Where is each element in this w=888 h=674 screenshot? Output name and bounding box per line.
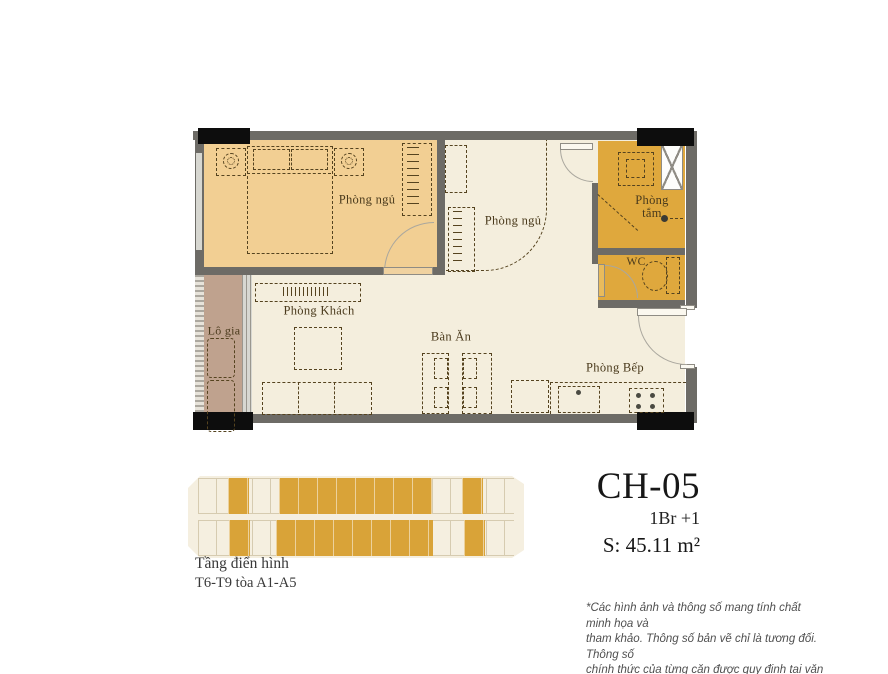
tv-screen <box>283 287 331 296</box>
wardrobe2-hangers <box>453 211 462 266</box>
unit-type: 1Br +1 <box>500 508 700 529</box>
toilet-bowl <box>642 261 668 291</box>
typical-floor-overview <box>188 476 524 558</box>
disclaimer-line-3: chính thức của từng căn được quy định tạ… <box>586 663 826 674</box>
loggia-screen-band <box>195 275 204 412</box>
fridge <box>511 380 549 413</box>
loggia-fixture-2 <box>207 380 235 432</box>
pillow-left <box>253 149 290 170</box>
highlighted-unit-bottom-left <box>229 520 250 556</box>
highlighted-units-bottom-center <box>276 520 433 556</box>
highlighted-unit-top-left <box>228 478 249 514</box>
pillow-right <box>291 149 328 170</box>
column-top-left <box>198 128 250 144</box>
sofa-seat-line-2 <box>334 382 335 413</box>
overview-caption: Tầng điển hình T6-T9 tòa A1-A5 <box>195 555 296 592</box>
disclaimer-line-2: tham khảo. Thông số bản vẽ chỉ là tương … <box>586 632 826 663</box>
stove <box>629 388 664 413</box>
wc-bottom-wall <box>598 300 685 308</box>
bathroom-label-line2: tắm <box>635 207 668 220</box>
right-wall-upper <box>686 131 697 308</box>
apartment-floorplan: Phòng ngủ Phòng ngủ Phòng tắm WC Lô gia … <box>193 128 697 430</box>
washing-machine-drum <box>626 159 645 178</box>
bedroom1-window <box>196 153 202 250</box>
dining-chair-3 <box>463 358 477 379</box>
toilet-tank <box>666 257 680 294</box>
living-label: Phòng Khách <box>283 304 354 319</box>
column-bottom-right <box>637 412 694 430</box>
sofa <box>262 382 372 415</box>
loggia-fixture-1 <box>207 338 235 378</box>
dining-chair-4 <box>463 387 477 408</box>
bathroom-label: Phòng tắm <box>635 194 668 220</box>
floorplan-page: Phòng ngủ Phòng ngủ Phòng tắm WC Lô gia … <box>0 0 888 674</box>
wc-label: WC <box>626 256 645 268</box>
coffee-table <box>294 327 342 370</box>
bedroom1-door-leaf <box>383 267 433 275</box>
highlighted-unit-top-right <box>462 478 483 514</box>
desk-bedroom2 <box>445 145 467 193</box>
bath-wc-wall <box>598 248 685 255</box>
disclaimer-note: *Các hình ảnh và thông số mang tính chất… <box>586 601 826 674</box>
sofa-seat-line-1 <box>298 382 299 413</box>
disclaimer-line-1: *Các hình ảnh và thông số mang tính chất… <box>586 601 826 632</box>
lamp-right <box>341 153 357 169</box>
column-top-right <box>637 128 694 146</box>
technical-shaft <box>661 144 683 190</box>
stove-burners <box>636 393 641 398</box>
bedroom1-label: Phòng ngủ <box>339 193 396 208</box>
basin-dashes <box>670 218 683 219</box>
overview-caption-line2: T6-T9 tòa A1-A5 <box>195 575 296 592</box>
highlighted-units-top-center <box>279 478 432 514</box>
lamp-left <box>223 153 239 169</box>
wardrobe1-hangers <box>407 147 419 210</box>
unit-info: CH-05 1Br +1 S: 45.11 m² <box>500 468 700 558</box>
kitchen-faucet <box>576 390 581 395</box>
overview-caption-line1: Tầng điển hình <box>195 555 296 573</box>
loggia-glass-door <box>242 275 252 412</box>
top-wall <box>193 131 697 140</box>
entrance-door-leaf <box>637 308 687 316</box>
bedroom1-bottom-wall <box>204 267 383 275</box>
dining-label: Bàn Ăn <box>431 330 471 345</box>
bathroom-door-leaf <box>560 143 593 150</box>
unit-area: S: 45.11 m² <box>500 533 700 558</box>
unit-code: CH-05 <box>500 468 700 505</box>
kitchen-label: Phòng Bếp <box>586 361 644 376</box>
blanket-line <box>247 173 331 174</box>
bedroom2-label: Phòng ngủ <box>485 214 542 229</box>
dining-chair-2 <box>434 387 448 408</box>
loggia-label: Lô gia <box>208 324 241 339</box>
bottom-wall <box>193 414 697 423</box>
dining-chair-1 <box>434 358 448 379</box>
wc-door-leaf <box>598 264 605 297</box>
bedrooms-divider-wall <box>437 140 445 275</box>
highlighted-unit-bottom-right <box>464 520 485 556</box>
